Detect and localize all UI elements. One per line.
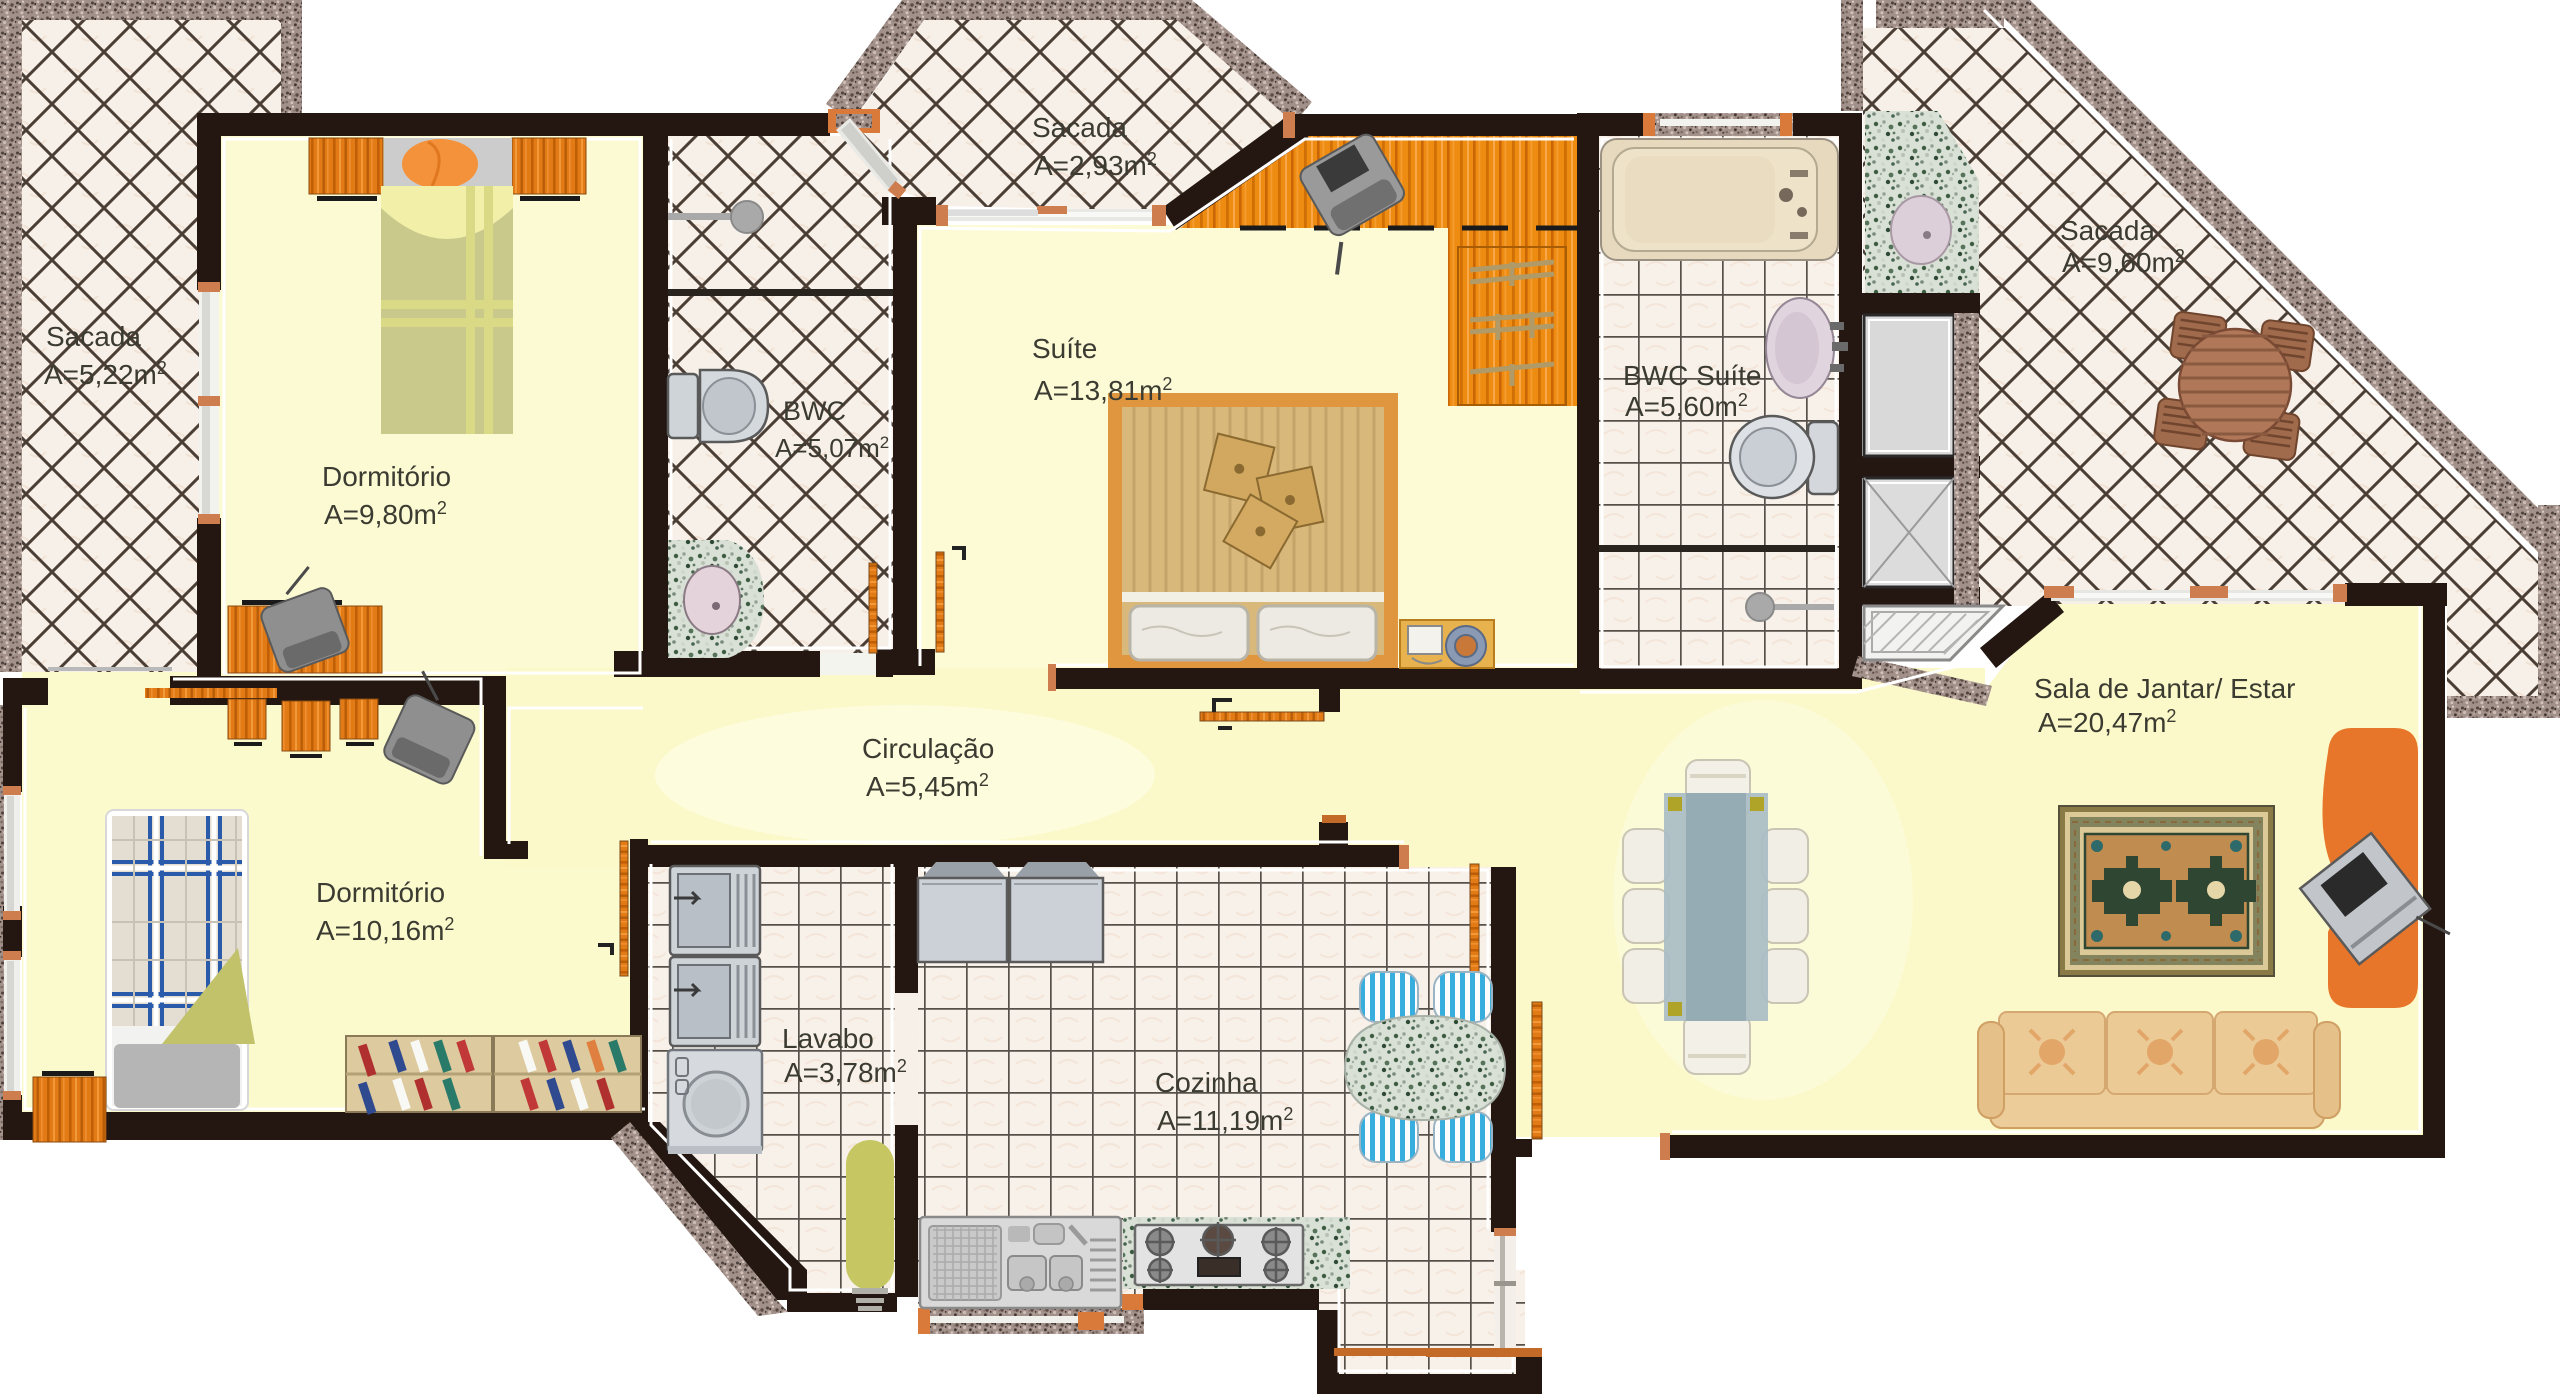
svg-text:A=5,45m2: A=5,45m2 — [866, 770, 989, 802]
svg-text:Suíte: Suíte — [1032, 333, 1097, 364]
svg-text:A=5,22m2: A=5,22m2 — [44, 358, 167, 390]
svg-text:Dormitório: Dormitório — [316, 877, 445, 908]
svg-text:A=13,81m2: A=13,81m2 — [1034, 374, 1172, 406]
svg-text:BWC: BWC — [783, 396, 846, 426]
svg-text:A=11,19m2: A=11,19m2 — [1157, 1104, 1293, 1136]
svg-text:A=5,07m2: A=5,07m2 — [775, 433, 889, 463]
svg-text:A=9,80m2: A=9,80m2 — [324, 498, 447, 530]
svg-text:A=5,60m2: A=5,60m2 — [1625, 390, 1748, 422]
svg-text:Sacada: Sacada — [1032, 112, 1127, 143]
svg-text:Cozinha: Cozinha — [1155, 1067, 1258, 1098]
svg-text:BWC Suíte: BWC Suíte — [1623, 360, 1761, 391]
svg-text:A=9,60m2: A=9,60m2 — [2062, 246, 2185, 278]
svg-text:Sala de Jantar/ Estar: Sala de Jantar/ Estar — [2034, 673, 2295, 704]
svg-text:A=2,93m2: A=2,93m2 — [1034, 149, 1157, 181]
svg-text:Lavabo: Lavabo — [782, 1023, 874, 1054]
svg-text:Circulação: Circulação — [862, 733, 994, 764]
svg-text:A=20,47m2: A=20,47m2 — [2038, 706, 2176, 738]
svg-text:Sacada: Sacada — [2060, 215, 2155, 246]
svg-text:A=10,16m2: A=10,16m2 — [316, 914, 454, 946]
svg-text:A=3,78m2: A=3,78m2 — [784, 1056, 907, 1088]
svg-text:Sacada: Sacada — [46, 321, 141, 352]
svg-text:Dormitório: Dormitório — [322, 461, 451, 492]
